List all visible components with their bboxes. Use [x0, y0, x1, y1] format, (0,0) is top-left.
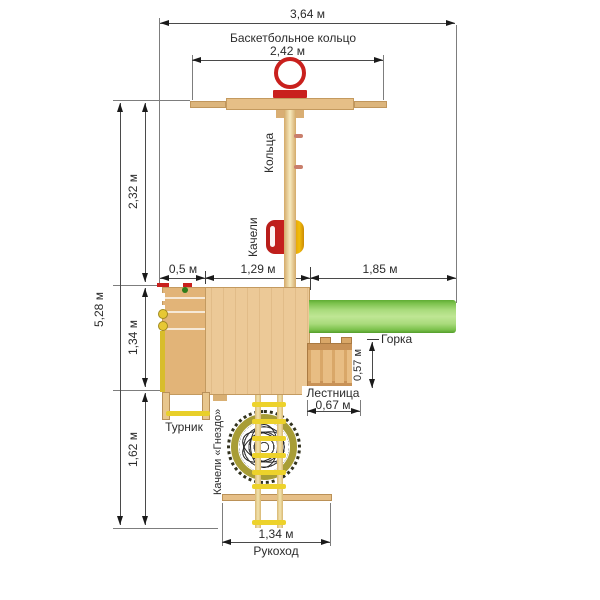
dim-line-left-offset	[160, 278, 205, 279]
dim-left-offset-label: 0,5 м	[158, 262, 208, 276]
monkeybars-rung	[252, 520, 286, 525]
dim-line-platform-depth	[145, 288, 146, 387]
platform-leg	[213, 395, 227, 401]
basketball-backboard	[273, 90, 307, 98]
dim-lower-depth-label: 1,62 м	[126, 412, 141, 488]
dim-total-width-label: 3,64 м	[160, 7, 455, 21]
stairs-plank	[311, 350, 320, 383]
platform-yellow-rail	[160, 331, 165, 392]
pullup-bar-label: Турник	[153, 420, 215, 434]
dim-line-total-width	[160, 23, 455, 24]
pullup-bar	[166, 411, 210, 416]
slide	[309, 300, 456, 333]
slide-label: Горка	[381, 332, 431, 346]
platform-red-fitting	[157, 283, 169, 287]
basketball-hoop-label: Баскетбольное кольцо	[178, 31, 408, 45]
dim-upper-depth-label: 2,32 м	[126, 154, 141, 230]
dim-line-upper-depth	[145, 103, 146, 282]
swing-seat-highlight	[270, 226, 275, 247]
platform-green-knob	[182, 287, 188, 293]
rings-mount-icon	[294, 165, 303, 169]
monkeybars-rung	[252, 402, 286, 407]
rings-label: Кольца	[262, 122, 277, 184]
basketball-ring-icon	[274, 57, 306, 89]
nest-swing-label: Качели «Гнездо»	[212, 408, 227, 496]
monkeybars-rail	[277, 395, 283, 528]
monkeybars-rail	[255, 395, 261, 528]
roof-plank-line	[163, 311, 205, 313]
dim-hoop-beam-label: 2,42 м	[192, 44, 383, 58]
monkeybars-rung	[252, 470, 286, 475]
hoop-beam-center	[226, 98, 354, 110]
dim-stairs-width-label: 0,67 м	[302, 398, 364, 412]
platform-yellow-knob	[158, 309, 168, 319]
stairs-plank	[335, 350, 344, 383]
monkeybars-rung	[252, 484, 286, 489]
dim-line-monkeybars-width	[222, 542, 330, 543]
dim-monkeybars-width-label: 1,34 м	[222, 527, 330, 541]
monkeybars-rung	[252, 453, 286, 458]
monkeybars-rung	[252, 419, 286, 424]
stairs-plank	[323, 350, 332, 383]
extension-line-right	[456, 25, 457, 303]
platform-roof-section	[162, 287, 206, 395]
swing-label: Качели	[246, 206, 261, 268]
platform-yellow-knob	[158, 321, 168, 331]
dim-line-lower-depth	[145, 393, 146, 525]
dim-line-total-depth	[120, 103, 121, 525]
dim-stairs-depth-label: 0,57 м	[352, 339, 367, 391]
playground-plan-diagram: 3,64 м Баскетбольное кольцо 2,42 м 5,28 …	[0, 0, 600, 600]
hoop-beam-right-arm	[354, 101, 387, 108]
dim-line-slide-length	[310, 278, 456, 279]
extension-line-monkeybars-right	[330, 503, 331, 546]
dim-total-depth-label: 5,28 м	[92, 272, 107, 348]
roof-plank-line	[163, 297, 205, 299]
monkeybars-rung	[252, 436, 286, 441]
platform-edge-notch	[160, 293, 165, 301]
dim-platform-depth-label: 1,34 м	[126, 300, 141, 376]
extension-line-hoop-right	[383, 55, 384, 100]
roof-plank-line	[163, 328, 205, 330]
hoop-beam-left-arm	[190, 101, 226, 108]
dim-tick	[310, 267, 311, 290]
monkeybars-label: Рукоход	[222, 544, 330, 558]
extension-line-left-top	[159, 18, 160, 287]
rings-mount-icon	[294, 134, 303, 138]
dim-line-stairs-depth	[372, 342, 373, 388]
extension-line-bottom	[113, 528, 218, 529]
extension-line-beam-level	[113, 100, 190, 101]
dim-slide-length-label: 1,85 м	[330, 262, 430, 276]
